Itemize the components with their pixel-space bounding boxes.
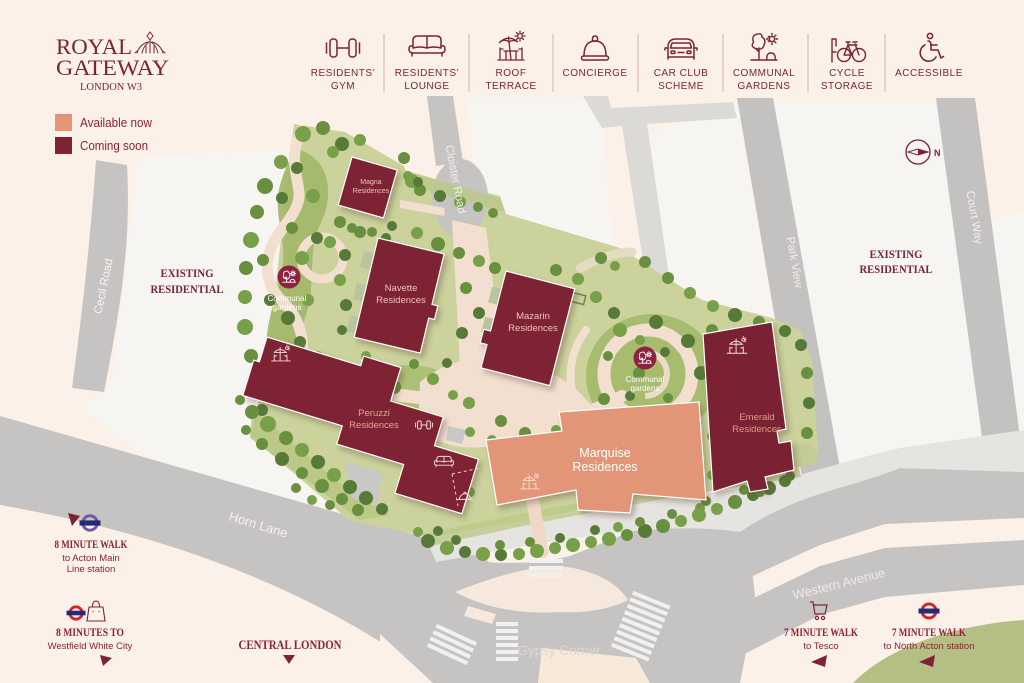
svg-text:Available now: Available now	[80, 115, 153, 130]
svg-text:Residences: Residences	[353, 188, 390, 195]
svg-text:gardens: gardens	[273, 303, 302, 312]
svg-text:EXISTING: EXISTING	[870, 247, 923, 261]
svg-text:LONDON W3: LONDON W3	[80, 82, 142, 93]
svg-text:GATEWAY: GATEWAY	[56, 55, 169, 80]
svg-text:to Tesco: to Tesco	[803, 641, 838, 652]
svg-text:Residences: Residences	[508, 323, 558, 334]
svg-text:Mazarin: Mazarin	[516, 311, 550, 322]
svg-text:RESIDENTS’: RESIDENTS’	[395, 68, 459, 79]
svg-text:ACCESSIBLE: ACCESSIBLE	[895, 68, 963, 79]
svg-text:Coming soon: Coming soon	[80, 138, 148, 153]
svg-text:RESIDENTIAL: RESIDENTIAL	[860, 262, 933, 276]
svg-text:Westfield White City: Westfield White City	[48, 641, 133, 652]
svg-text:8 MINUTE WALK: 8 MINUTE WALK	[55, 539, 128, 551]
svg-text:Peruzzi: Peruzzi	[358, 408, 390, 419]
svg-text:CENTRAL LONDON: CENTRAL LONDON	[239, 638, 342, 652]
svg-text:LOUNGE: LOUNGE	[404, 81, 449, 92]
svg-text:CYCLE: CYCLE	[829, 68, 865, 79]
svg-text:TERRACE: TERRACE	[485, 81, 536, 92]
svg-text:Emerald: Emerald	[739, 412, 774, 423]
svg-text:CONCIERGE: CONCIERGE	[562, 68, 627, 79]
svg-text:to Acton Main: to Acton Main	[62, 553, 120, 564]
svg-text:to North Acton station: to North Acton station	[884, 641, 975, 652]
svg-text:COMMUNAL: COMMUNAL	[733, 68, 795, 79]
svg-text:N: N	[934, 148, 941, 158]
svg-text:Communal: Communal	[268, 294, 307, 303]
svg-text:CAR CLUB: CAR CLUB	[654, 68, 709, 79]
svg-text:Residences: Residences	[376, 295, 426, 306]
svg-text:ROOF: ROOF	[496, 68, 527, 79]
svg-text:7 MINUTE WALK: 7 MINUTE WALK	[784, 627, 858, 639]
svg-text:Marquise: Marquise	[579, 446, 630, 460]
svg-text:gardens: gardens	[631, 384, 660, 393]
svg-text:EXISTING: EXISTING	[161, 266, 214, 280]
svg-text:Line station: Line station	[67, 564, 116, 575]
svg-text:Residences: Residences	[572, 460, 637, 474]
svg-text:Navette: Navette	[385, 283, 418, 294]
svg-text:Communal: Communal	[626, 375, 665, 384]
svg-text:RESIDENTIAL: RESIDENTIAL	[151, 282, 224, 296]
svg-text:Gypsy Corner: Gypsy Corner	[517, 643, 601, 658]
svg-text:STORAGE: STORAGE	[821, 81, 873, 92]
svg-text:Residences: Residences	[349, 420, 399, 431]
svg-text:Magna: Magna	[360, 179, 382, 186]
svg-text:GARDENS: GARDENS	[738, 81, 791, 92]
svg-text:8 MINUTES TO: 8 MINUTES TO	[56, 627, 124, 639]
svg-text:7 MINUTE WALK: 7 MINUTE WALK	[892, 627, 966, 639]
svg-text:GYM: GYM	[331, 81, 355, 92]
svg-text:RESIDENTS’: RESIDENTS’	[311, 68, 375, 79]
svg-text:Residences: Residences	[732, 424, 782, 435]
svg-text:SCHEME: SCHEME	[658, 81, 704, 92]
